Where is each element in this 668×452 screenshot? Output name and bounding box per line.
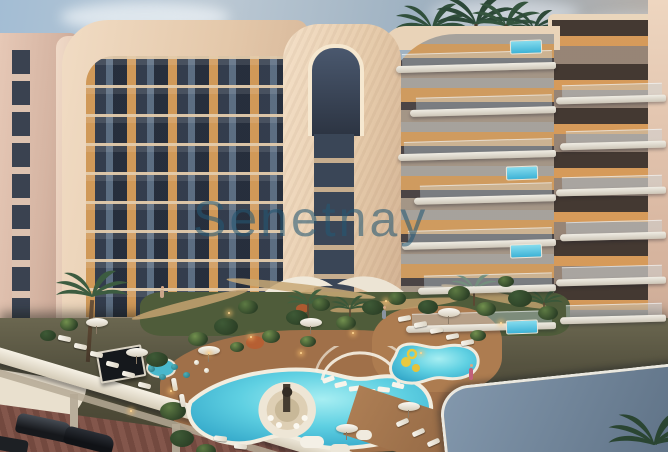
pool-island — [258, 382, 316, 438]
bush — [214, 318, 238, 335]
path-lamp — [420, 352, 422, 354]
person-head — [383, 306, 386, 309]
bean-bag — [171, 364, 178, 370]
bush — [498, 276, 514, 287]
daybed — [330, 444, 350, 452]
person — [160, 290, 164, 298]
left-window-strip — [12, 50, 30, 342]
path-lamp — [300, 352, 302, 354]
balcony-pool — [510, 39, 542, 54]
daybed — [356, 430, 372, 440]
parasol — [86, 318, 108, 327]
bush — [230, 342, 244, 352]
bean-bag — [148, 366, 155, 372]
bush — [538, 306, 558, 320]
bush — [448, 286, 470, 301]
bush — [238, 300, 258, 314]
parasol — [438, 308, 460, 317]
bush — [60, 318, 78, 331]
watermark: Senetnay — [193, 190, 493, 248]
bush — [170, 430, 194, 447]
bush — [146, 352, 168, 367]
path-lamp — [170, 390, 172, 392]
balcony-pool — [506, 319, 538, 334]
bean-bag — [183, 372, 190, 378]
bush — [388, 292, 406, 305]
bush — [196, 444, 216, 452]
bush — [336, 316, 356, 330]
bush — [262, 330, 280, 343]
person — [382, 310, 386, 319]
parasol — [300, 318, 322, 327]
bush — [362, 300, 384, 315]
person-head — [161, 286, 164, 289]
path-lamp — [130, 410, 132, 412]
bush — [312, 298, 330, 311]
parasol — [398, 402, 420, 411]
scene: Senetnay — [0, 0, 668, 452]
path-lamp — [385, 300, 387, 302]
bush — [40, 330, 56, 341]
parasol — [126, 348, 148, 357]
palm-tree — [606, 408, 668, 452]
path-lamp — [352, 332, 354, 334]
bush — [188, 332, 208, 346]
path-lamp — [208, 352, 210, 354]
bean-bag — [159, 374, 166, 380]
path-lamp — [500, 322, 502, 324]
bush — [300, 336, 316, 347]
bush — [418, 300, 438, 314]
balcony-pool — [510, 243, 542, 258]
parasol — [336, 424, 358, 433]
person-head — [470, 364, 473, 367]
sphere-lamp — [204, 368, 209, 373]
palm-tree — [54, 268, 130, 310]
person — [469, 368, 473, 380]
daybed — [300, 436, 324, 448]
sphere-lamp — [194, 360, 199, 365]
path-lamp — [228, 312, 230, 314]
bush — [508, 290, 532, 307]
bush — [476, 302, 496, 316]
balcony-pool — [506, 165, 538, 180]
arch-opening — [308, 44, 364, 136]
path-lamp — [250, 336, 252, 338]
